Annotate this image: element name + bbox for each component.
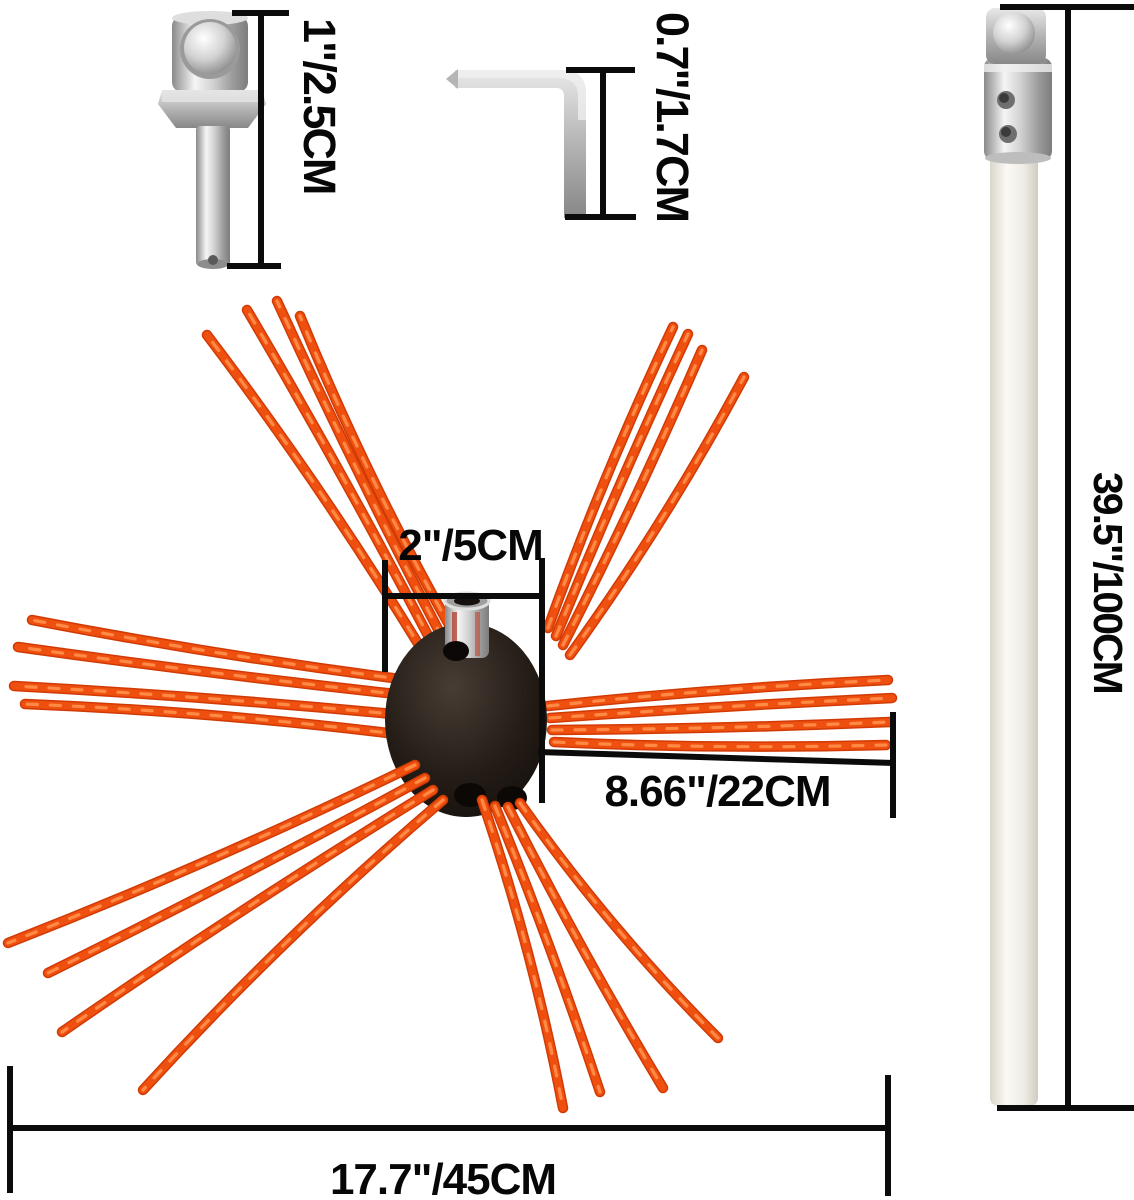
dimension-label-rod: 39.5"/100CM [1087, 472, 1128, 693]
diagram-graphics [0, 0, 1134, 1200]
dimension-label-bristle: 8.66"/22CM [575, 770, 860, 814]
dimension-label-adapter: 1"/2.5CM [297, 18, 342, 193]
product-dimension-diagram: 1"/2.5CM 0.7"/1.7CM 39.5"/100CM 2"/5CM 8… [0, 0, 1134, 1200]
brush-bristles-front [8, 765, 718, 1108]
drill-adapter-photo [158, 11, 266, 269]
dimension-label-brush-diameter: 17.7"/45CM [298, 1158, 588, 1200]
hex-wrench-photo [446, 69, 586, 218]
flexible-rod-photo [984, 8, 1052, 1106]
dimension-label-hub: 2"/5CM [378, 524, 563, 568]
dimension-label-wrench: 0.7"/1.7CM [650, 12, 695, 221]
